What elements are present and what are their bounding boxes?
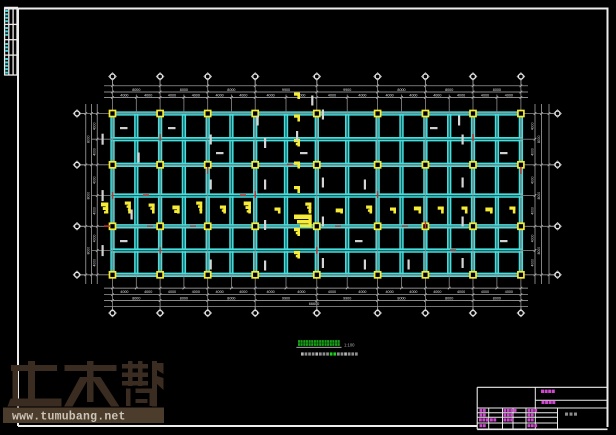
svg-text:4000: 4000 <box>328 93 336 97</box>
svg-text:8000: 8000 <box>180 88 188 92</box>
svg-text:4000: 4000 <box>239 93 247 97</box>
svg-text:1:100: 1:100 <box>344 342 355 347</box>
svg-text:4000: 4000 <box>144 93 152 97</box>
svg-text:4000: 4000 <box>457 290 465 294</box>
svg-text:4000: 4000 <box>505 290 513 294</box>
svg-text:4000: 4000 <box>358 93 366 97</box>
svg-text:8000: 8000 <box>86 135 90 143</box>
svg-text:8000: 8000 <box>132 88 140 92</box>
svg-text:8000: 8000 <box>537 247 541 255</box>
svg-text:4000: 4000 <box>505 93 513 97</box>
svg-text:4000: 4000 <box>93 148 97 156</box>
svg-text:4000: 4000 <box>93 235 97 243</box>
svg-text:8000: 8000 <box>227 296 235 300</box>
svg-text:8000: 8000 <box>397 88 405 92</box>
svg-text:4000: 4000 <box>409 93 417 97</box>
svg-text:4000: 4000 <box>481 290 489 294</box>
svg-text:8000: 8000 <box>493 88 501 92</box>
svg-text:4000: 4000 <box>93 207 97 215</box>
svg-text:4000: 4000 <box>93 176 97 184</box>
svg-text:4000: 4000 <box>531 235 535 243</box>
svg-text:4000: 4000 <box>215 93 223 97</box>
svg-text:4000: 4000 <box>328 290 336 294</box>
svg-text:4000: 4000 <box>120 93 128 97</box>
svg-text:4000: 4000 <box>531 176 535 184</box>
svg-text:9900: 9900 <box>282 296 290 300</box>
svg-text:4000: 4000 <box>297 290 305 294</box>
svg-text:4000: 4000 <box>266 290 274 294</box>
svg-text:4000: 4000 <box>385 290 393 294</box>
svg-text:8000: 8000 <box>537 192 541 200</box>
svg-text:9900: 9900 <box>343 88 351 92</box>
svg-text:4000: 4000 <box>358 290 366 294</box>
svg-text:4000: 4000 <box>168 290 176 294</box>
svg-text:4000: 4000 <box>531 207 535 215</box>
svg-text:www.tumubang.net: www.tumubang.net <box>12 411 126 424</box>
svg-text:8000: 8000 <box>132 296 140 300</box>
svg-text:4000: 4000 <box>239 290 247 294</box>
svg-text:4000: 4000 <box>215 290 223 294</box>
svg-text:4000: 4000 <box>409 290 417 294</box>
svg-text:4000: 4000 <box>93 259 97 267</box>
svg-text:8000: 8000 <box>180 296 188 300</box>
svg-text:4000: 4000 <box>531 122 535 130</box>
svg-text:4000: 4000 <box>433 290 441 294</box>
svg-text:8000: 8000 <box>397 296 405 300</box>
svg-text:4000: 4000 <box>481 93 489 97</box>
svg-text:4000: 4000 <box>433 93 441 97</box>
svg-text:4000: 4000 <box>120 290 128 294</box>
svg-text:8000: 8000 <box>445 88 453 92</box>
svg-text:8000: 8000 <box>537 135 541 143</box>
svg-text:9900: 9900 <box>343 296 351 300</box>
svg-text:4000: 4000 <box>93 122 97 130</box>
svg-text:4000: 4000 <box>192 290 200 294</box>
svg-text:8000: 8000 <box>86 192 90 200</box>
svg-text:8000: 8000 <box>86 247 90 255</box>
svg-text:4000: 4000 <box>266 93 274 97</box>
svg-text:4000: 4000 <box>457 93 465 97</box>
svg-text:8000: 8000 <box>445 296 453 300</box>
svg-text:4000: 4000 <box>531 148 535 156</box>
svg-text:66600: 66600 <box>309 302 320 306</box>
svg-text:4000: 4000 <box>192 93 200 97</box>
svg-text:8000: 8000 <box>227 88 235 92</box>
svg-text:9900: 9900 <box>282 88 290 92</box>
svg-text:4000: 4000 <box>144 290 152 294</box>
svg-text:8000: 8000 <box>493 296 501 300</box>
svg-text:4000: 4000 <box>385 93 393 97</box>
svg-text:4000: 4000 <box>168 93 176 97</box>
svg-text:4000: 4000 <box>531 259 535 267</box>
